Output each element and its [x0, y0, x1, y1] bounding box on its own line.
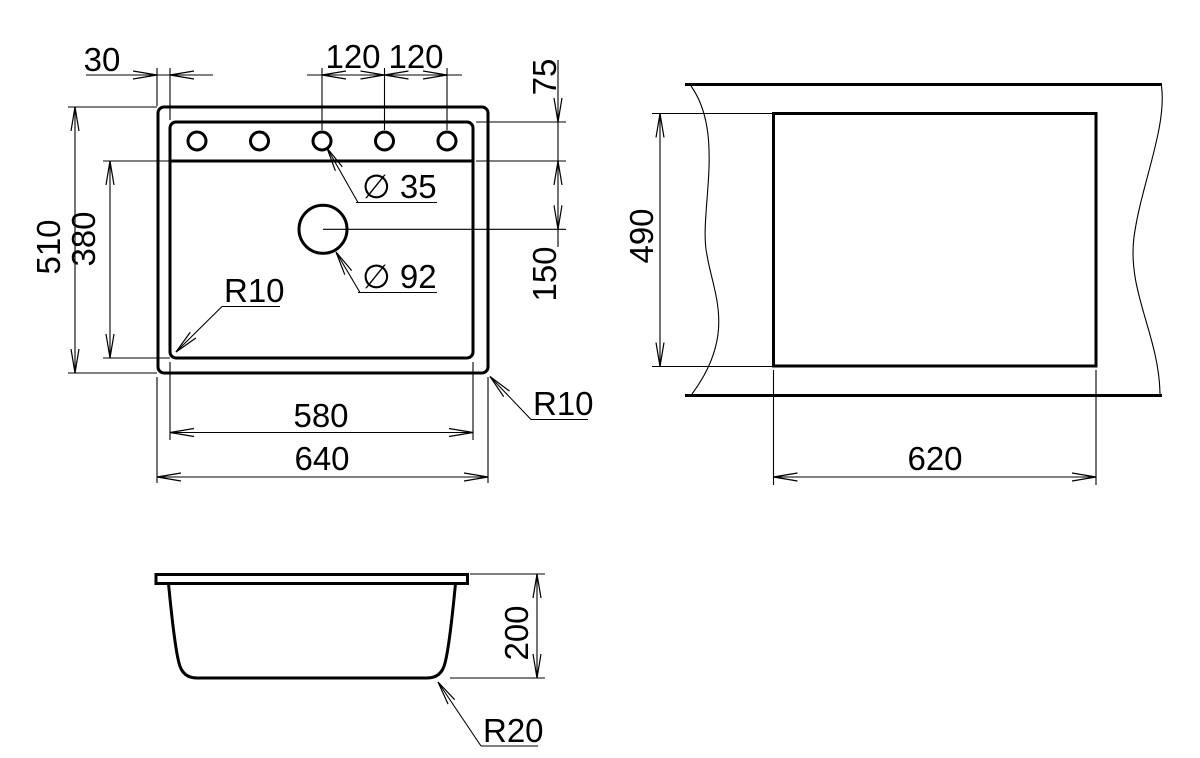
dim-label-580: 580 — [293, 397, 348, 434]
dim-inner-depth-380: 380 — [65, 161, 170, 358]
cutout-view: 490 620 — [623, 85, 1162, 486]
dim-label-r10-inner: R10 — [224, 272, 285, 309]
dim-hole-spacing-120: 120 120 — [307, 38, 462, 130]
break-line-left — [691, 86, 719, 394]
leader-drain-diameter-92: ∅ 92 — [336, 252, 437, 295]
faucet-hole-3 — [313, 132, 331, 150]
dim-label-r20: R20 — [483, 712, 544, 749]
dim-label-30: 30 — [84, 41, 121, 78]
dim-75-150-chain: 75 150 — [323, 59, 566, 302]
faucet-hole-1 — [188, 132, 206, 150]
faucet-hole-4 — [376, 132, 394, 150]
top-view: 30 120 120 75 150 — [30, 38, 594, 483]
bowl-profile — [169, 584, 456, 679]
dim-bowl-height-200: 200 — [450, 574, 545, 678]
dim-label-r10-outer: R10 — [533, 385, 594, 422]
rim-profile — [156, 575, 468, 584]
cutout-rect — [774, 114, 1097, 367]
front-view: 200 R20 — [156, 574, 545, 749]
dim-label-75: 75 — [526, 59, 563, 96]
drawing-canvas: 30 120 120 75 150 — [0, 0, 1200, 758]
leader-bottom-radius-r20: R20 — [438, 682, 544, 749]
dim-label-120a: 120 — [325, 38, 380, 75]
leader-inner-corner-radius: R10 — [176, 272, 285, 352]
dim-label-150: 150 — [526, 246, 563, 301]
dim-label-510: 510 — [30, 219, 67, 274]
dim-label-dia35: ∅ 35 — [362, 168, 437, 205]
dim-label-dia92: ∅ 92 — [362, 258, 437, 295]
leader-outer-corner-radius: R10 — [490, 377, 594, 423]
dim-label-620: 620 — [907, 440, 962, 477]
dim-cutout-depth-490: 490 — [623, 114, 773, 367]
dim-label-200: 200 — [498, 605, 535, 660]
dim-label-380: 380 — [65, 211, 102, 266]
sink-inner-rect — [170, 122, 473, 358]
dim-label-640: 640 — [294, 440, 349, 477]
leader-hole-diameter-35: ∅ 35 — [327, 148, 437, 205]
dim-cutout-width-620: 620 — [774, 370, 1097, 485]
break-line-right — [1133, 86, 1162, 394]
dim-label-120b: 120 — [388, 38, 443, 75]
faucet-hole-5 — [438, 132, 456, 150]
sink-dimension-drawing: 30 120 120 75 150 — [0, 0, 1200, 758]
dim-label-490: 490 — [623, 208, 660, 263]
faucet-hole-2 — [251, 132, 269, 150]
